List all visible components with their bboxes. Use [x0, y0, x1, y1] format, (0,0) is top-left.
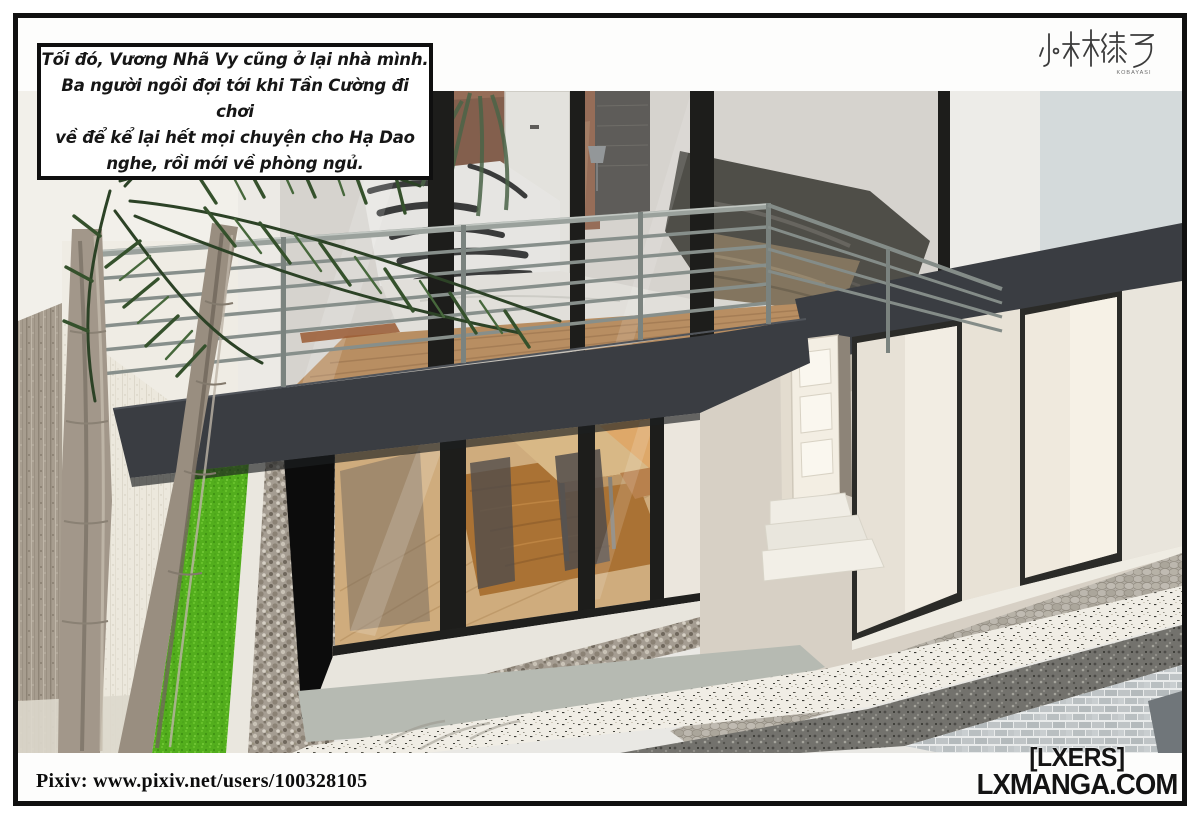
watermark-site: LXMANGA.COM: [976, 770, 1177, 800]
kobayashi-logo-icon: KOBAYASI: [1038, 26, 1158, 78]
narration-line: Tối đó, Vương Nhã Vy cũng ở lại nhà mình…: [41, 47, 429, 73]
narration-line: Ba người ngồi đợi tới khi Tần Cường đi c…: [41, 73, 429, 125]
house-render-illustration: [18, 91, 1182, 753]
watermark-group: [LXERS]: [976, 744, 1177, 770]
white-wall: [950, 91, 1040, 273]
narration-box: Tối đó, Vương Nhã Vy cũng ở lại nhà mình…: [37, 43, 433, 180]
pixiv-credit: Pixiv: www.pixiv.net/users/100328105: [36, 770, 367, 793]
watermark: [LXERS] LXMANGA.COM: [976, 744, 1177, 800]
kobayashi-characters: 小林綠子: [0, 0, 1, 1]
kobayashi-romanized: KOBAYASI: [1116, 70, 1151, 76]
narration-line: nghe, rồi mới về phòng ngủ.: [41, 151, 429, 177]
narration-line: về để kể lại hết mọi chuyện cho Hạ Dao: [41, 125, 429, 151]
